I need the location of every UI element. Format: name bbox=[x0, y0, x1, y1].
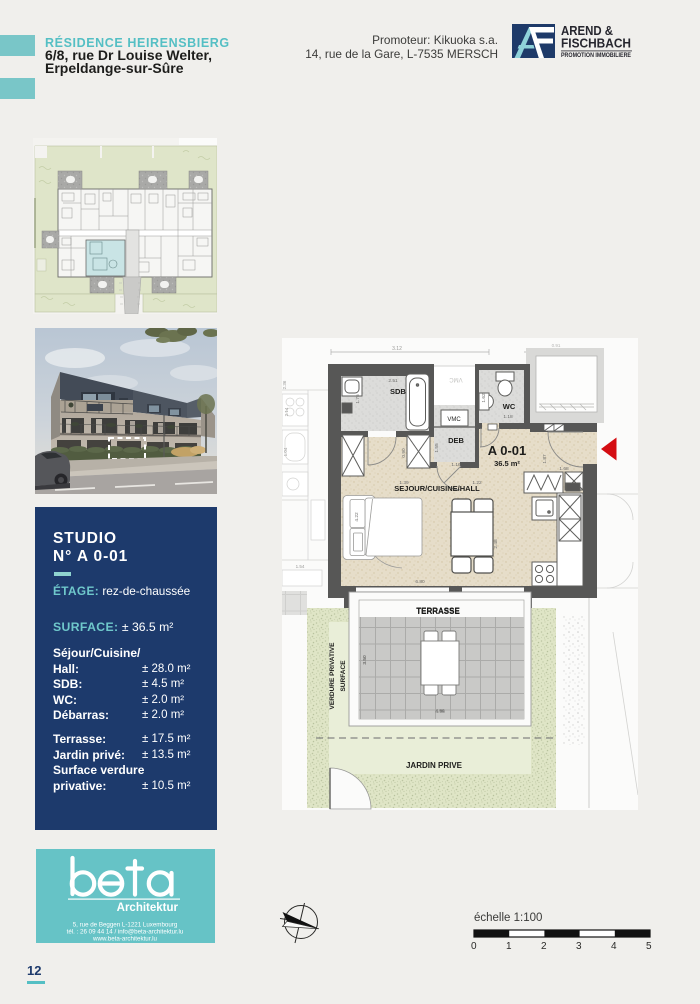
svg-text:5: 5 bbox=[646, 941, 652, 952]
svg-text:1.22: 1.22 bbox=[472, 480, 482, 486]
svg-text:1.75: 1.75 bbox=[355, 394, 361, 404]
svg-text:2.14: 2.14 bbox=[284, 407, 289, 416]
svg-text:6.80: 6.80 bbox=[415, 579, 425, 585]
svg-text:VERDURE PRIVATIVE: VERDURE PRIVATIVE bbox=[329, 642, 336, 710]
svg-text:2.51: 2.51 bbox=[388, 378, 398, 384]
svg-text:1.04: 1.04 bbox=[283, 447, 288, 456]
svg-text:FISCHBACH: FISCHBACH bbox=[561, 36, 631, 51]
svg-text:2.36: 2.36 bbox=[282, 380, 287, 389]
svg-text:2: 2 bbox=[541, 941, 547, 952]
svg-text:Architektur: Architektur bbox=[117, 902, 179, 914]
svg-text:1.54: 1.54 bbox=[296, 564, 305, 569]
svg-text:0: 0 bbox=[471, 941, 477, 952]
svg-text:A 0-01: A 0-01 bbox=[488, 443, 527, 458]
svg-text:0.91: 0.91 bbox=[552, 343, 561, 348]
svg-text:4.22: 4.22 bbox=[354, 512, 360, 522]
svg-text:36.5 m²: 36.5 m² bbox=[494, 459, 520, 468]
svg-text:5, rue de Beggen L-1221 Luxemb: 5, rue de Beggen L-1221 Luxembourg bbox=[73, 922, 178, 929]
svg-text:TERRASSE: TERRASSE bbox=[416, 607, 460, 616]
svg-text:3: 3 bbox=[576, 941, 582, 952]
svg-text:1.62: 1.62 bbox=[481, 393, 487, 403]
svg-text:SDB: SDB bbox=[390, 387, 406, 396]
svg-text:DEB: DEB bbox=[448, 436, 464, 445]
svg-text:1.39: 1.39 bbox=[399, 480, 409, 486]
svg-text:1.87: 1.87 bbox=[542, 454, 548, 464]
svg-text:1.18: 1.18 bbox=[503, 414, 513, 420]
svg-text:1.55: 1.55 bbox=[434, 443, 440, 453]
svg-text:3.12: 3.12 bbox=[392, 346, 402, 352]
svg-text:4.96: 4.96 bbox=[435, 709, 445, 715]
svg-text:JARDIN PRIVE: JARDIN PRIVE bbox=[406, 761, 463, 770]
svg-text:3.50: 3.50 bbox=[362, 655, 368, 665]
svg-text:1.68: 1.68 bbox=[559, 466, 569, 472]
svg-text:tél. : 26 09 44 14 / info@beta: tél. : 26 09 44 14 / info@beta-architekt… bbox=[67, 929, 184, 936]
svg-text:VMC: VMC bbox=[449, 376, 463, 382]
svg-text:0.90: 0.90 bbox=[401, 448, 407, 458]
svg-text:4: 4 bbox=[611, 941, 617, 952]
svg-text:1.16: 1.16 bbox=[451, 462, 461, 468]
svg-text:1: 1 bbox=[506, 941, 512, 952]
svg-text:PROMOTION IMMOBILIERE: PROMOTION IMMOBILIERE bbox=[561, 52, 631, 59]
svg-text:VMC: VMC bbox=[447, 417, 461, 423]
svg-text:WC: WC bbox=[503, 402, 516, 411]
svg-text:SURFACE: SURFACE bbox=[340, 660, 347, 692]
svg-text:2.48: 2.48 bbox=[493, 539, 499, 549]
svg-text:www.beta-architektur.lu: www.beta-architektur.lu bbox=[92, 936, 158, 943]
